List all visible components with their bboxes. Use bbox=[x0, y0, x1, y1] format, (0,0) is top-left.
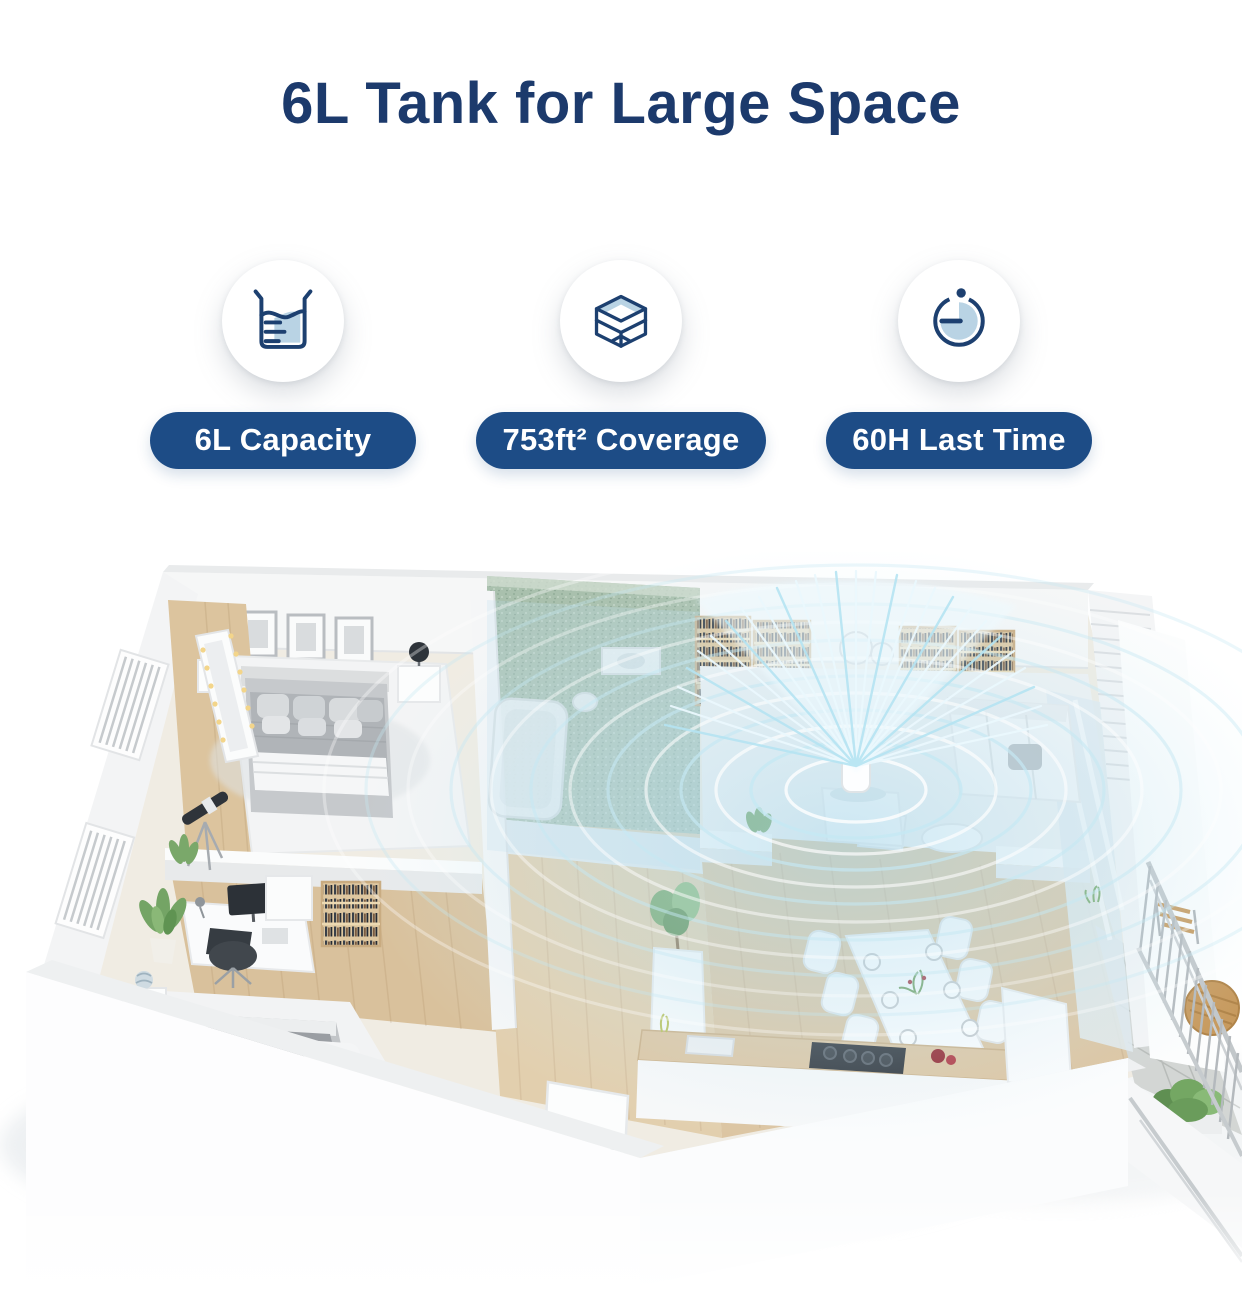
coverage-badge: 753ft² Coverage bbox=[476, 412, 765, 469]
office-cabinet bbox=[266, 876, 312, 920]
feature-duration: 60H Last Time bbox=[823, 260, 1095, 469]
capacity-icon-circle bbox=[222, 260, 344, 382]
page-title: 6L Tank for Large Space bbox=[0, 0, 1242, 135]
beaker-icon bbox=[247, 285, 319, 357]
wall-picture-frames bbox=[240, 612, 372, 662]
features-row: 6L Capacity 753ft² Coverage bbox=[0, 260, 1242, 469]
laptop bbox=[262, 928, 288, 944]
feature-capacity: 6L Capacity bbox=[147, 260, 419, 469]
apartment-render bbox=[0, 552, 1242, 1292]
coverage-cube-icon bbox=[585, 285, 657, 357]
bottom-fade bbox=[0, 1190, 1242, 1292]
product-infographic: 6L Tank for Large Space 6L Capacity bbox=[0, 0, 1242, 1292]
duration-badge: 60H Last Time bbox=[826, 412, 1092, 469]
coverage-icon-circle bbox=[560, 260, 682, 382]
feature-coverage: 753ft² Coverage bbox=[485, 260, 757, 469]
capacity-badge: 6L Capacity bbox=[150, 412, 416, 469]
duration-icon-circle bbox=[898, 260, 1020, 382]
timer-icon bbox=[923, 285, 995, 357]
floorplan-illustration bbox=[0, 552, 1242, 1292]
